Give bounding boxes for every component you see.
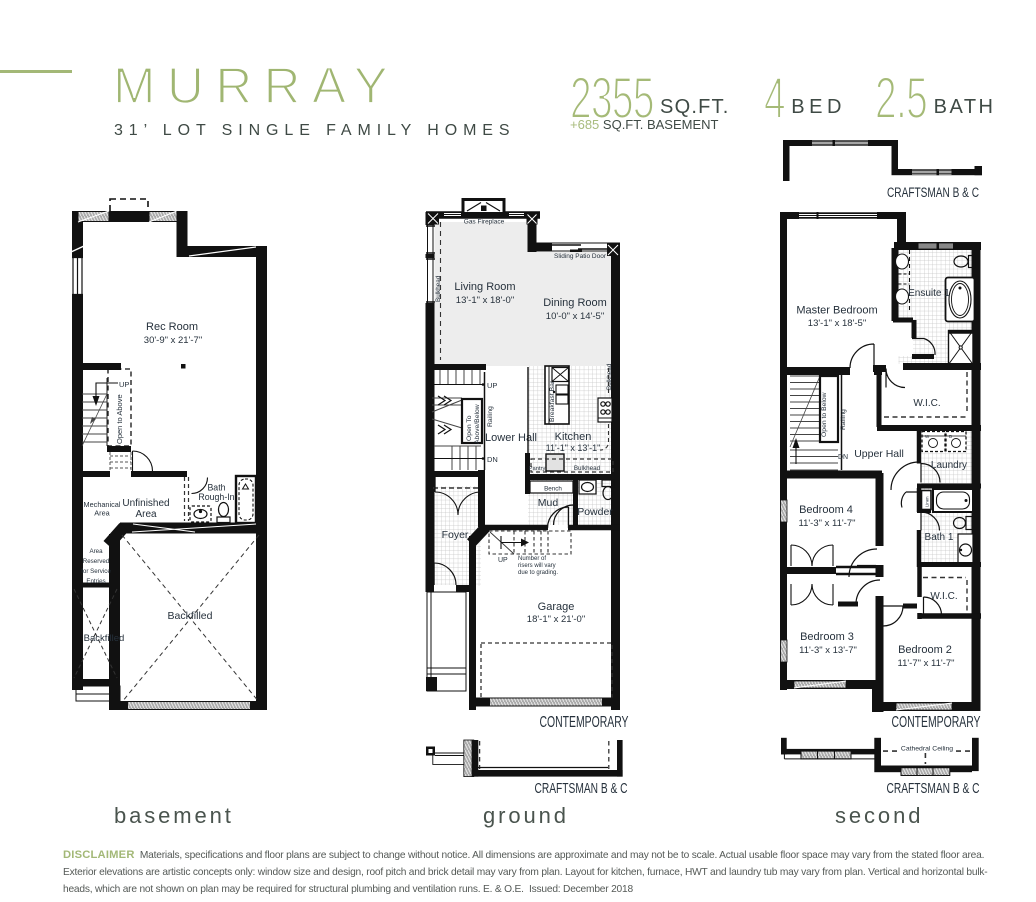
svg-text:Rough-In: Rough-In <box>198 492 234 502</box>
svg-text:for Service: for Service <box>81 568 111 575</box>
svg-text:Bedroom 4: Bedroom 4 <box>799 504 853 516</box>
svg-text:Backfilled: Backfilled <box>168 610 213 622</box>
svg-text:DN: DN <box>838 454 848 461</box>
svg-text:Garage: Garage <box>538 601 575 613</box>
svg-text:11'-7" x 11'-7": 11'-7" x 11'-7" <box>897 658 954 669</box>
svg-text:Bulkhead: Bulkhead <box>574 465 601 472</box>
svg-text:UP: UP <box>119 380 129 389</box>
svg-text:CONTEMPORARY: CONTEMPORARY <box>540 714 629 731</box>
svg-text:Open to Above: Open to Above <box>115 394 124 444</box>
svg-text:DN: DN <box>487 455 498 464</box>
svg-text:due to grading.: due to grading. <box>518 570 558 576</box>
svg-text:Dining Room: Dining Room <box>543 297 607 309</box>
svg-text:11'-3" x 11'-7": 11'-3" x 11'-7" <box>798 518 855 529</box>
svg-text:Reserved: Reserved <box>83 558 110 565</box>
svg-text:Cathedral Ceiling: Cathedral Ceiling <box>901 746 953 753</box>
svg-text:CRAFTSMAN B & C: CRAFTSMAN B & C <box>887 781 980 797</box>
svg-text:Lower Hall: Lower Hall <box>485 432 537 444</box>
svg-text:30'-9" x 21'-7": 30'-9" x 21'-7" <box>144 335 202 346</box>
svg-text:Living Room: Living Room <box>454 281 515 293</box>
svg-text:Number of: Number of <box>518 556 546 562</box>
svg-text:Railing: Railing <box>487 406 494 427</box>
svg-text:Ensuite 1: Ensuite 1 <box>908 288 950 299</box>
svg-text:Unfinished: Unfinished <box>122 498 169 509</box>
svg-text:Kitchen: Kitchen <box>555 431 592 443</box>
svg-text:Bulkhead: Bulkhead <box>606 363 613 390</box>
svg-text:10'-0" x 14'-5": 10'-0" x 14'-5" <box>546 311 604 322</box>
svg-text:Area: Area <box>135 509 157 520</box>
svg-text:UP: UP <box>487 381 497 390</box>
svg-text:CONTEMPORARY: CONTEMPORARY <box>892 714 981 731</box>
svg-text:UP: UP <box>498 557 508 564</box>
svg-text:Powder: Powder <box>577 506 613 518</box>
svg-text:CRAFTSMAN B & C: CRAFTSMAN B & C <box>535 781 628 797</box>
svg-text:11'-1" x 13'-1": 11'-1" x 13'-1" <box>546 443 601 453</box>
svg-text:Bedroom 3: Bedroom 3 <box>800 631 854 643</box>
svg-text:Mud: Mud <box>538 497 559 509</box>
svg-text:Foyer: Foyer <box>442 529 469 541</box>
svg-text:Linen: Linen <box>925 496 930 507</box>
svg-text:11'-3" x 13'-7": 11'-3" x 13'-7" <box>799 645 857 656</box>
svg-text:Entries: Entries <box>86 578 105 585</box>
svg-text:CRAFTSMAN B & C: CRAFTSMAN B & C <box>887 185 979 200</box>
svg-text:Bedroom 2: Bedroom 2 <box>898 644 952 656</box>
svg-text:Breakfast Bar: Breakfast Bar <box>549 380 556 422</box>
svg-text:Open To: Open To <box>466 415 473 441</box>
svg-text:Rec Room: Rec Room <box>146 321 198 333</box>
svg-text:Sliding Patio Door: Sliding Patio Door <box>554 253 607 260</box>
svg-text:Backfilled: Backfilled <box>84 633 125 644</box>
svg-text:Open to Below: Open to Below <box>821 392 828 437</box>
svg-text:Master Bedroom: Master Bedroom <box>796 305 877 317</box>
svg-text:Area: Area <box>94 509 110 518</box>
svg-text:Bench: Bench <box>544 486 562 493</box>
svg-text:Upper Hall: Upper Hall <box>854 448 904 460</box>
svg-text:Laundry: Laundry <box>931 460 967 471</box>
svg-text:Railing: Railing <box>840 409 847 430</box>
svg-text:Area: Area <box>89 548 103 555</box>
svg-text:risers will vary: risers will vary <box>518 563 556 569</box>
svg-text:Bath 1: Bath 1 <box>925 532 954 543</box>
svg-text:Bath: Bath <box>207 483 225 493</box>
svg-text:W.I.C.: W.I.C. <box>913 398 940 409</box>
svg-text:Above/Below: Above/Below <box>474 404 481 444</box>
svg-text:18'-1" x 21'-0": 18'-1" x 21'-0" <box>527 614 585 625</box>
svg-text:Bulkhead: Bulkhead <box>435 275 442 302</box>
svg-text:13'-1" x 18'-5": 13'-1" x 18'-5" <box>808 318 866 329</box>
svg-text:Gas Fireplace: Gas Fireplace <box>464 219 505 226</box>
svg-text:13'-1" x 18'-0": 13'-1" x 18'-0" <box>456 295 514 306</box>
